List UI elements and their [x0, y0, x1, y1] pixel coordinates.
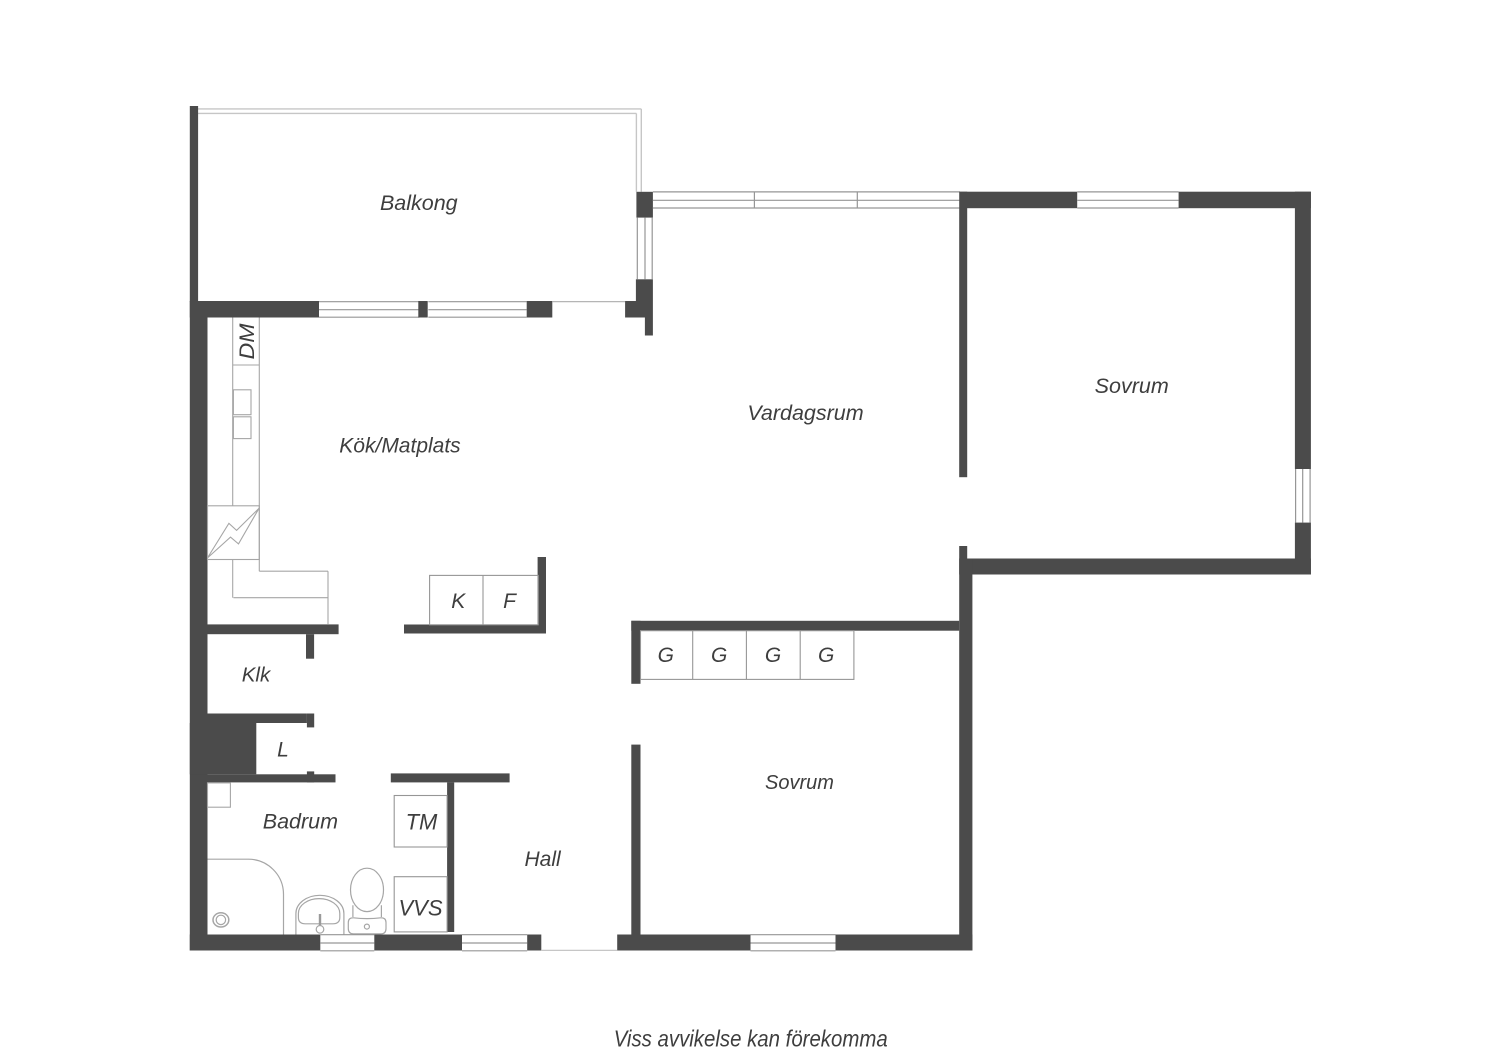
- svg-text:L: L: [277, 739, 289, 762]
- svg-text:DM: DM: [236, 323, 259, 360]
- svg-text:VVS: VVS: [398, 896, 442, 921]
- svg-text:G: G: [765, 644, 781, 667]
- svg-text:Balkong: Balkong: [380, 191, 458, 215]
- svg-text:Sovrum: Sovrum: [765, 772, 834, 794]
- svg-text:Hall: Hall: [525, 848, 563, 871]
- svg-text:Klk: Klk: [242, 664, 272, 687]
- svg-text:Sovrum: Sovrum: [1095, 374, 1169, 398]
- svg-text:Viss avvikelse kan förekomma: Viss avvikelse kan förekomma: [614, 1026, 888, 1052]
- svg-text:Kök/Matplats: Kök/Matplats: [339, 435, 461, 458]
- svg-text:K: K: [451, 590, 466, 613]
- svg-text:F: F: [503, 590, 517, 613]
- svg-text:Badrum: Badrum: [263, 810, 338, 834]
- svg-text:G: G: [818, 644, 834, 667]
- svg-text:G: G: [711, 644, 727, 667]
- svg-text:G: G: [658, 644, 674, 667]
- svg-text:Vardagsrum: Vardagsrum: [747, 401, 863, 425]
- svg-text:TM: TM: [406, 810, 438, 835]
